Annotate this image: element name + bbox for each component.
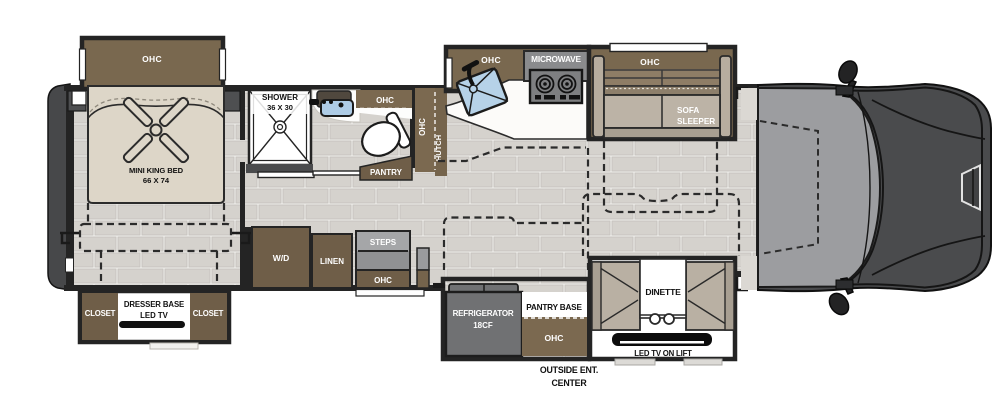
svg-text:66 X 74: 66 X 74 (143, 176, 170, 185)
svg-text:SLEEPER: SLEEPER (677, 117, 715, 126)
svg-text:REFRIGERATOR: REFRIGERATOR (453, 309, 514, 318)
svg-text:LINEN: LINEN (320, 257, 344, 266)
svg-text:SOFA: SOFA (677, 106, 699, 115)
svg-text:SHOWER: SHOWER (262, 93, 298, 102)
svg-text:OHC: OHC (481, 55, 501, 65)
svg-text:OHC: OHC (640, 57, 660, 67)
svg-text:OHC: OHC (418, 118, 427, 136)
svg-text:PANTRY: PANTRY (370, 168, 403, 177)
svg-text:LED TV: LED TV (140, 311, 169, 320)
svg-text:STEPS: STEPS (370, 238, 397, 247)
svg-text:DINETTE: DINETTE (645, 287, 681, 297)
svg-text:LED TV ON LIFT: LED TV ON LIFT (634, 349, 692, 358)
svg-text:18CF: 18CF (473, 321, 493, 330)
svg-text:OHC: OHC (142, 54, 162, 64)
svg-text:W/D: W/D (273, 253, 290, 263)
svg-text:OHC: OHC (545, 333, 564, 343)
svg-text:OUTSIDE ENT.: OUTSIDE ENT. (540, 365, 598, 375)
svg-text:MICROWAVE: MICROWAVE (531, 54, 581, 64)
svg-text:36 X 30: 36 X 30 (267, 103, 293, 112)
svg-text:DRESSER BASE: DRESSER BASE (124, 300, 184, 309)
svg-text:CENTER: CENTER (552, 378, 588, 388)
svg-text:CLOSET: CLOSET (193, 309, 224, 318)
svg-text:OHC: OHC (374, 276, 392, 285)
svg-text:OHC: OHC (376, 96, 394, 105)
svg-text:MINI KING BED: MINI KING BED (129, 166, 184, 175)
svg-text:PANTRY BASE: PANTRY BASE (526, 303, 582, 312)
svg-text:CLOSET: CLOSET (85, 309, 116, 318)
